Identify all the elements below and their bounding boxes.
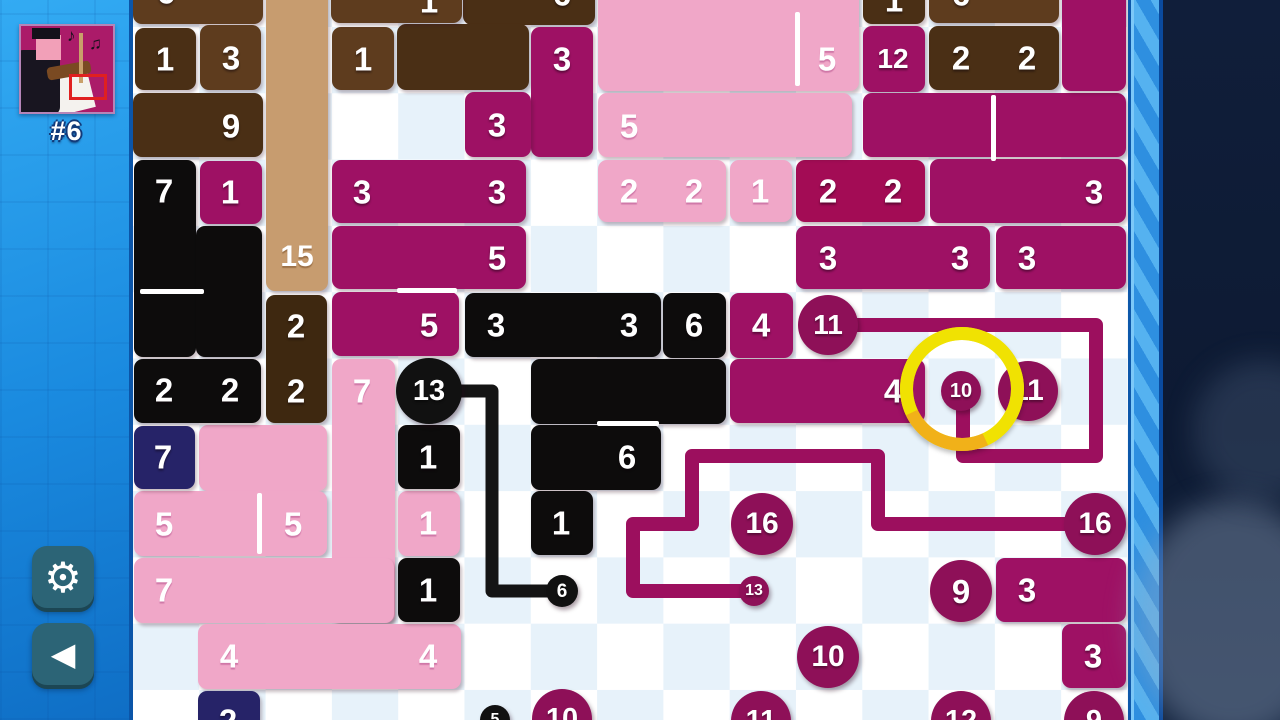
number-endpoint-circle[interactable]: 9 — [930, 560, 992, 622]
avatar-hair — [32, 28, 60, 39]
endpoint-number: 6 — [557, 582, 568, 601]
drawn-path-line[interactable] — [633, 456, 1086, 591]
endpoint-number: 9 — [1086, 707, 1102, 720]
number-endpoint-circle[interactable]: 16 — [1064, 493, 1126, 555]
board[interactable]: 6139152216111622331233355144223333355221… — [0, 0, 1280, 720]
music-note-icon: ♫ — [89, 34, 102, 54]
music-note-icon: ♪ — [67, 26, 76, 46]
endpoint-number: 10 — [546, 705, 578, 720]
back-arrow-icon: ◀ — [51, 635, 76, 673]
number-endpoint-circle[interactable]: 6 — [546, 575, 578, 607]
cloud-decoration — [1193, 360, 1280, 500]
endpoint-number: 5 — [491, 712, 500, 720]
number-endpoint-circle[interactable]: 16 — [731, 493, 793, 555]
endpoint-number: 11 — [746, 707, 777, 720]
gear-icon: ⚙ — [44, 553, 82, 602]
endpoint-number: 16 — [745, 509, 778, 539]
back-button[interactable]: ◀ — [32, 623, 94, 685]
number-endpoint-circle[interactable]: 10 — [797, 626, 859, 688]
endpoint-number: 13 — [413, 377, 445, 406]
endpoint-number: 12 — [945, 707, 977, 720]
drawn-path-line[interactable] — [440, 391, 547, 591]
endpoint-number: 10 — [811, 642, 844, 672]
endpoint-number: 11 — [813, 311, 843, 339]
number-endpoint-circle[interactable]: 13 — [739, 576, 769, 606]
sidebar-divider — [129, 0, 133, 720]
number-endpoint-circle[interactable]: 11 — [798, 295, 858, 355]
puzzle-preview-image: ♪ ♫ — [19, 24, 115, 114]
endpoint-number: 13 — [745, 583, 763, 599]
endpoint-number: 9 — [952, 575, 970, 608]
drawn-path-lines — [0, 0, 1280, 720]
sidebar: ♪ ♫ #6 ⚙ ◀ — [0, 0, 129, 720]
settings-button[interactable]: ⚙ — [32, 546, 94, 608]
number-endpoint-circle[interactable]: 13 — [396, 358, 462, 424]
night-sky-background — [1163, 0, 1280, 720]
endpoint-number: 16 — [1078, 509, 1111, 539]
avatar-highlight-box — [69, 74, 108, 100]
game-screen: 6139152216111622331233355144223333355221… — [0, 0, 1280, 720]
level-label: #6 — [0, 116, 133, 147]
